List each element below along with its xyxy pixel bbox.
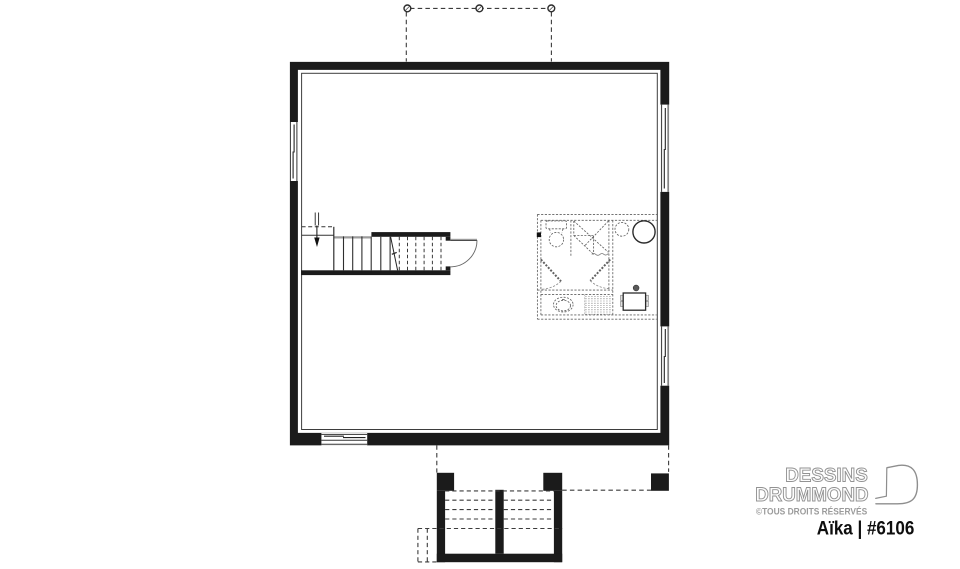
svg-text:DESSINS: DESSINS [785,464,868,486]
svg-text:©TOUS DROITS RÉSERVÉS: ©TOUS DROITS RÉSERVÉS [756,506,867,517]
svg-text:Aïka | #6106: Aïka | #6106 [817,518,915,540]
svg-text:DRUMMOND: DRUMMOND [755,485,868,506]
